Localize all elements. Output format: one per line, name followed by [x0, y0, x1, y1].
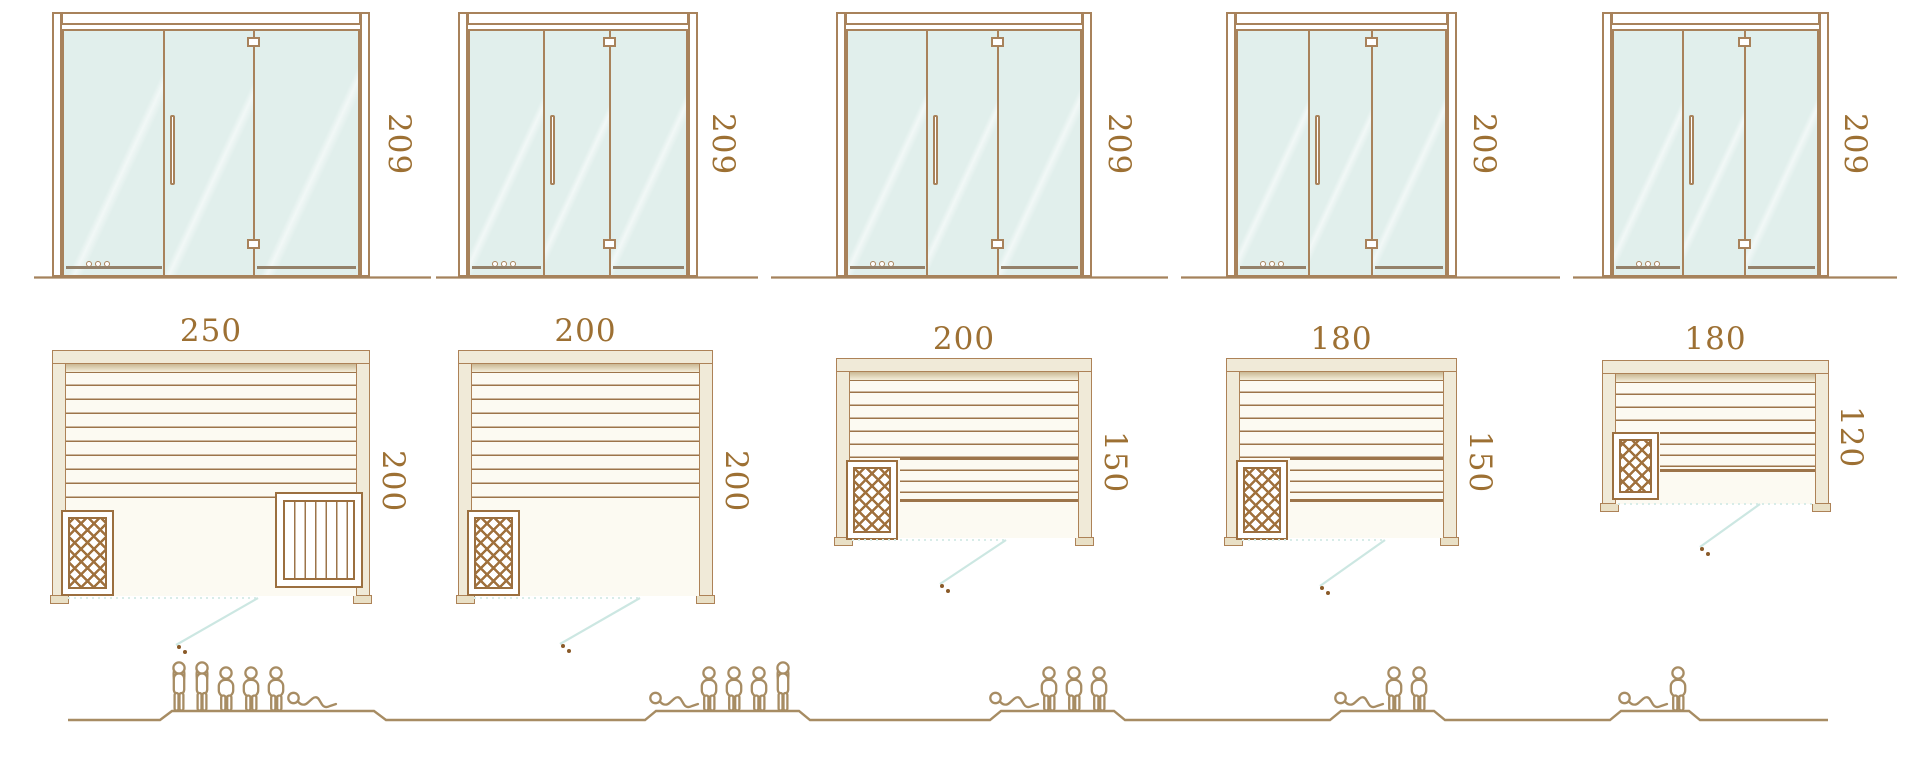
door-swing-line: [176, 504, 1760, 645]
capacity-figure-seated: [244, 667, 258, 710]
capacity-figure-seated: [219, 667, 233, 710]
capacity-group-sauna-200x150: [990, 667, 1106, 710]
capacity-figure-standing: [777, 662, 788, 710]
capacity-figure-seated: [702, 667, 716, 710]
capacity-figures-strip: .fig{stroke:#a78c63;stroke-width:2.3;fil…: [0, 630, 1920, 764]
capacity-figure-seated: [752, 667, 766, 710]
capacity-figure-lying: [650, 693, 698, 707]
capacity-figure-lying: [1619, 693, 1667, 707]
capacity-figure-lying: [1335, 693, 1383, 707]
capacity-figure-seated: [727, 667, 741, 710]
capacity-group-sauna-180x150: [1335, 667, 1426, 710]
capacity-figure-lying: [990, 693, 1038, 707]
capacity-figure-seated: [1412, 667, 1426, 710]
capacity-baseline: [68, 711, 1828, 720]
capacity-figure-seated: [1067, 667, 1081, 710]
capacity-figure-seated: [1042, 667, 1056, 710]
sauna-size-diagram: 209 250 200: [0, 0, 1920, 764]
capacity-figure-seated: [1671, 667, 1685, 710]
capacity-figure-seated: [1092, 667, 1106, 710]
capacity-figure-seated: [269, 667, 283, 710]
capacity-figure-lying: [288, 693, 336, 707]
capacity-figure-seated: [1387, 667, 1401, 710]
capacity-figure-standing: [173, 662, 184, 710]
capacity-group-sauna-200x200: [650, 662, 788, 710]
capacity-group-sauna-180x120: [1619, 667, 1685, 710]
capacity-figure-standing: [196, 662, 207, 710]
capacity-group-sauna-250x200: [173, 662, 336, 710]
